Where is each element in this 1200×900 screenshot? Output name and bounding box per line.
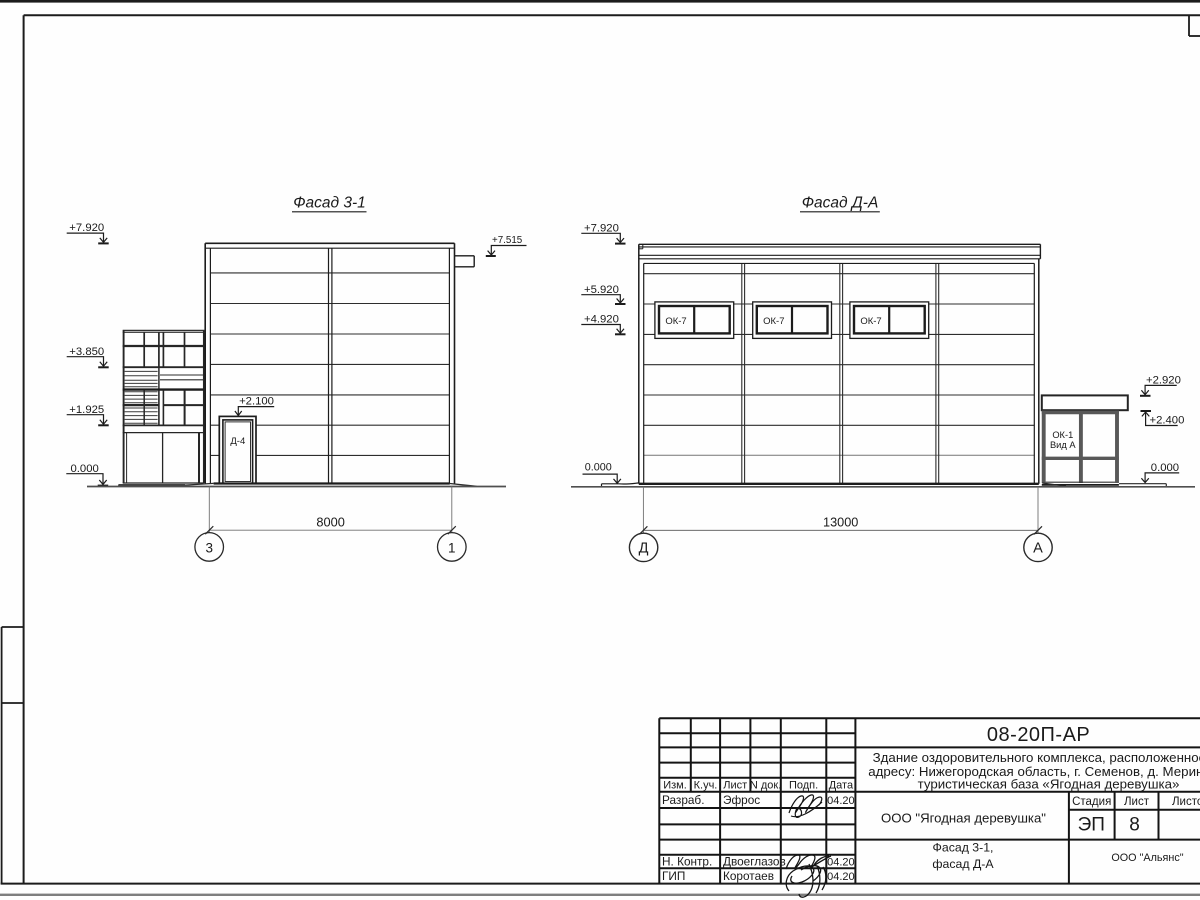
svg-text:3: 3: [205, 541, 213, 556]
svg-text:8: 8: [1129, 815, 1140, 836]
svg-text:04.20: 04.20: [827, 857, 855, 869]
svg-text:Фасад 3-1,: Фасад 3-1,: [933, 841, 994, 855]
svg-text:ООО "Альянс": ООО "Альянс": [1111, 852, 1183, 864]
svg-text:+4.920: +4.920: [584, 314, 619, 326]
svg-text:+2.920: +2.920: [1146, 374, 1181, 386]
svg-text:Н. Контр.: Н. Контр.: [662, 855, 712, 869]
svg-text:К.уч.: К.уч.: [694, 780, 718, 792]
svg-text:Изм.: Изм.: [663, 780, 687, 792]
svg-text:Эфрос: Эфрос: [723, 793, 760, 807]
svg-text:А: А: [1033, 541, 1043, 557]
svg-text:Фасад Д-А: Фасад Д-А: [802, 195, 879, 212]
svg-text:N док.: N док.: [750, 780, 781, 792]
svg-text:ОК-7: ОК-7: [860, 316, 881, 327]
svg-text:Коротаев: Коротаев: [723, 869, 774, 883]
svg-text:Разраб.: Разраб.: [662, 793, 704, 807]
svg-text:08-20П-АР: 08-20П-АР: [987, 724, 1090, 746]
svg-text:Стадия: Стадия: [1072, 796, 1111, 808]
svg-text:1: 1: [448, 541, 456, 556]
svg-text:ОК-7: ОК-7: [763, 316, 784, 327]
svg-text:ООО "Ягодная деревушка": ООО "Ягодная деревушка": [881, 810, 1046, 825]
svg-text:ЭП: ЭП: [1078, 815, 1105, 836]
svg-text:+2.400: +2.400: [1150, 414, 1185, 426]
svg-text:фасад Д-А: фасад Д-А: [932, 857, 994, 871]
svg-text:0.000: 0.000: [71, 463, 99, 475]
svg-text:+2.100: +2.100: [239, 395, 274, 407]
svg-text:Д-4: Д-4: [230, 436, 245, 447]
svg-text:Лист: Лист: [1124, 796, 1150, 808]
svg-text:Листов: Листов: [1172, 796, 1200, 808]
svg-text:Фасад 3-1: Фасад 3-1: [293, 195, 366, 212]
svg-text:Вид А: Вид А: [1050, 440, 1076, 450]
svg-text:+5.920: +5.920: [584, 284, 619, 296]
svg-text:Д: Д: [639, 541, 649, 557]
svg-text:0.000: 0.000: [1151, 462, 1179, 474]
svg-text:13000: 13000: [823, 516, 858, 530]
svg-text:ОК-7: ОК-7: [665, 316, 686, 327]
svg-text:Лист: Лист: [723, 780, 747, 792]
svg-text:+7.515: +7.515: [492, 235, 523, 246]
svg-text:04.20: 04.20: [827, 795, 855, 807]
svg-text:Здание оздоровительного компле: Здание оздоровительного комплекса, распо…: [873, 750, 1200, 765]
svg-text:ГИП: ГИП: [662, 869, 685, 883]
svg-text:+1.925: +1.925: [69, 404, 104, 416]
svg-text:0.000: 0.000: [585, 462, 612, 474]
svg-text:+7.920: +7.920: [69, 222, 104, 234]
svg-text:8000: 8000: [316, 515, 344, 530]
svg-text:04.20: 04.20: [827, 871, 855, 883]
svg-text:Дата: Дата: [829, 780, 854, 792]
svg-text:+3.850: +3.850: [69, 346, 104, 358]
svg-text:Подп.: Подп.: [789, 780, 818, 792]
svg-text:туристическая база «Ягодная де: туристическая база «Ягодная деревушка»: [918, 777, 1180, 792]
svg-text:Двоеглазов: Двоеглазов: [723, 855, 786, 869]
svg-text:+7.920: +7.920: [584, 222, 619, 234]
svg-text:ОК-1: ОК-1: [1052, 430, 1073, 440]
